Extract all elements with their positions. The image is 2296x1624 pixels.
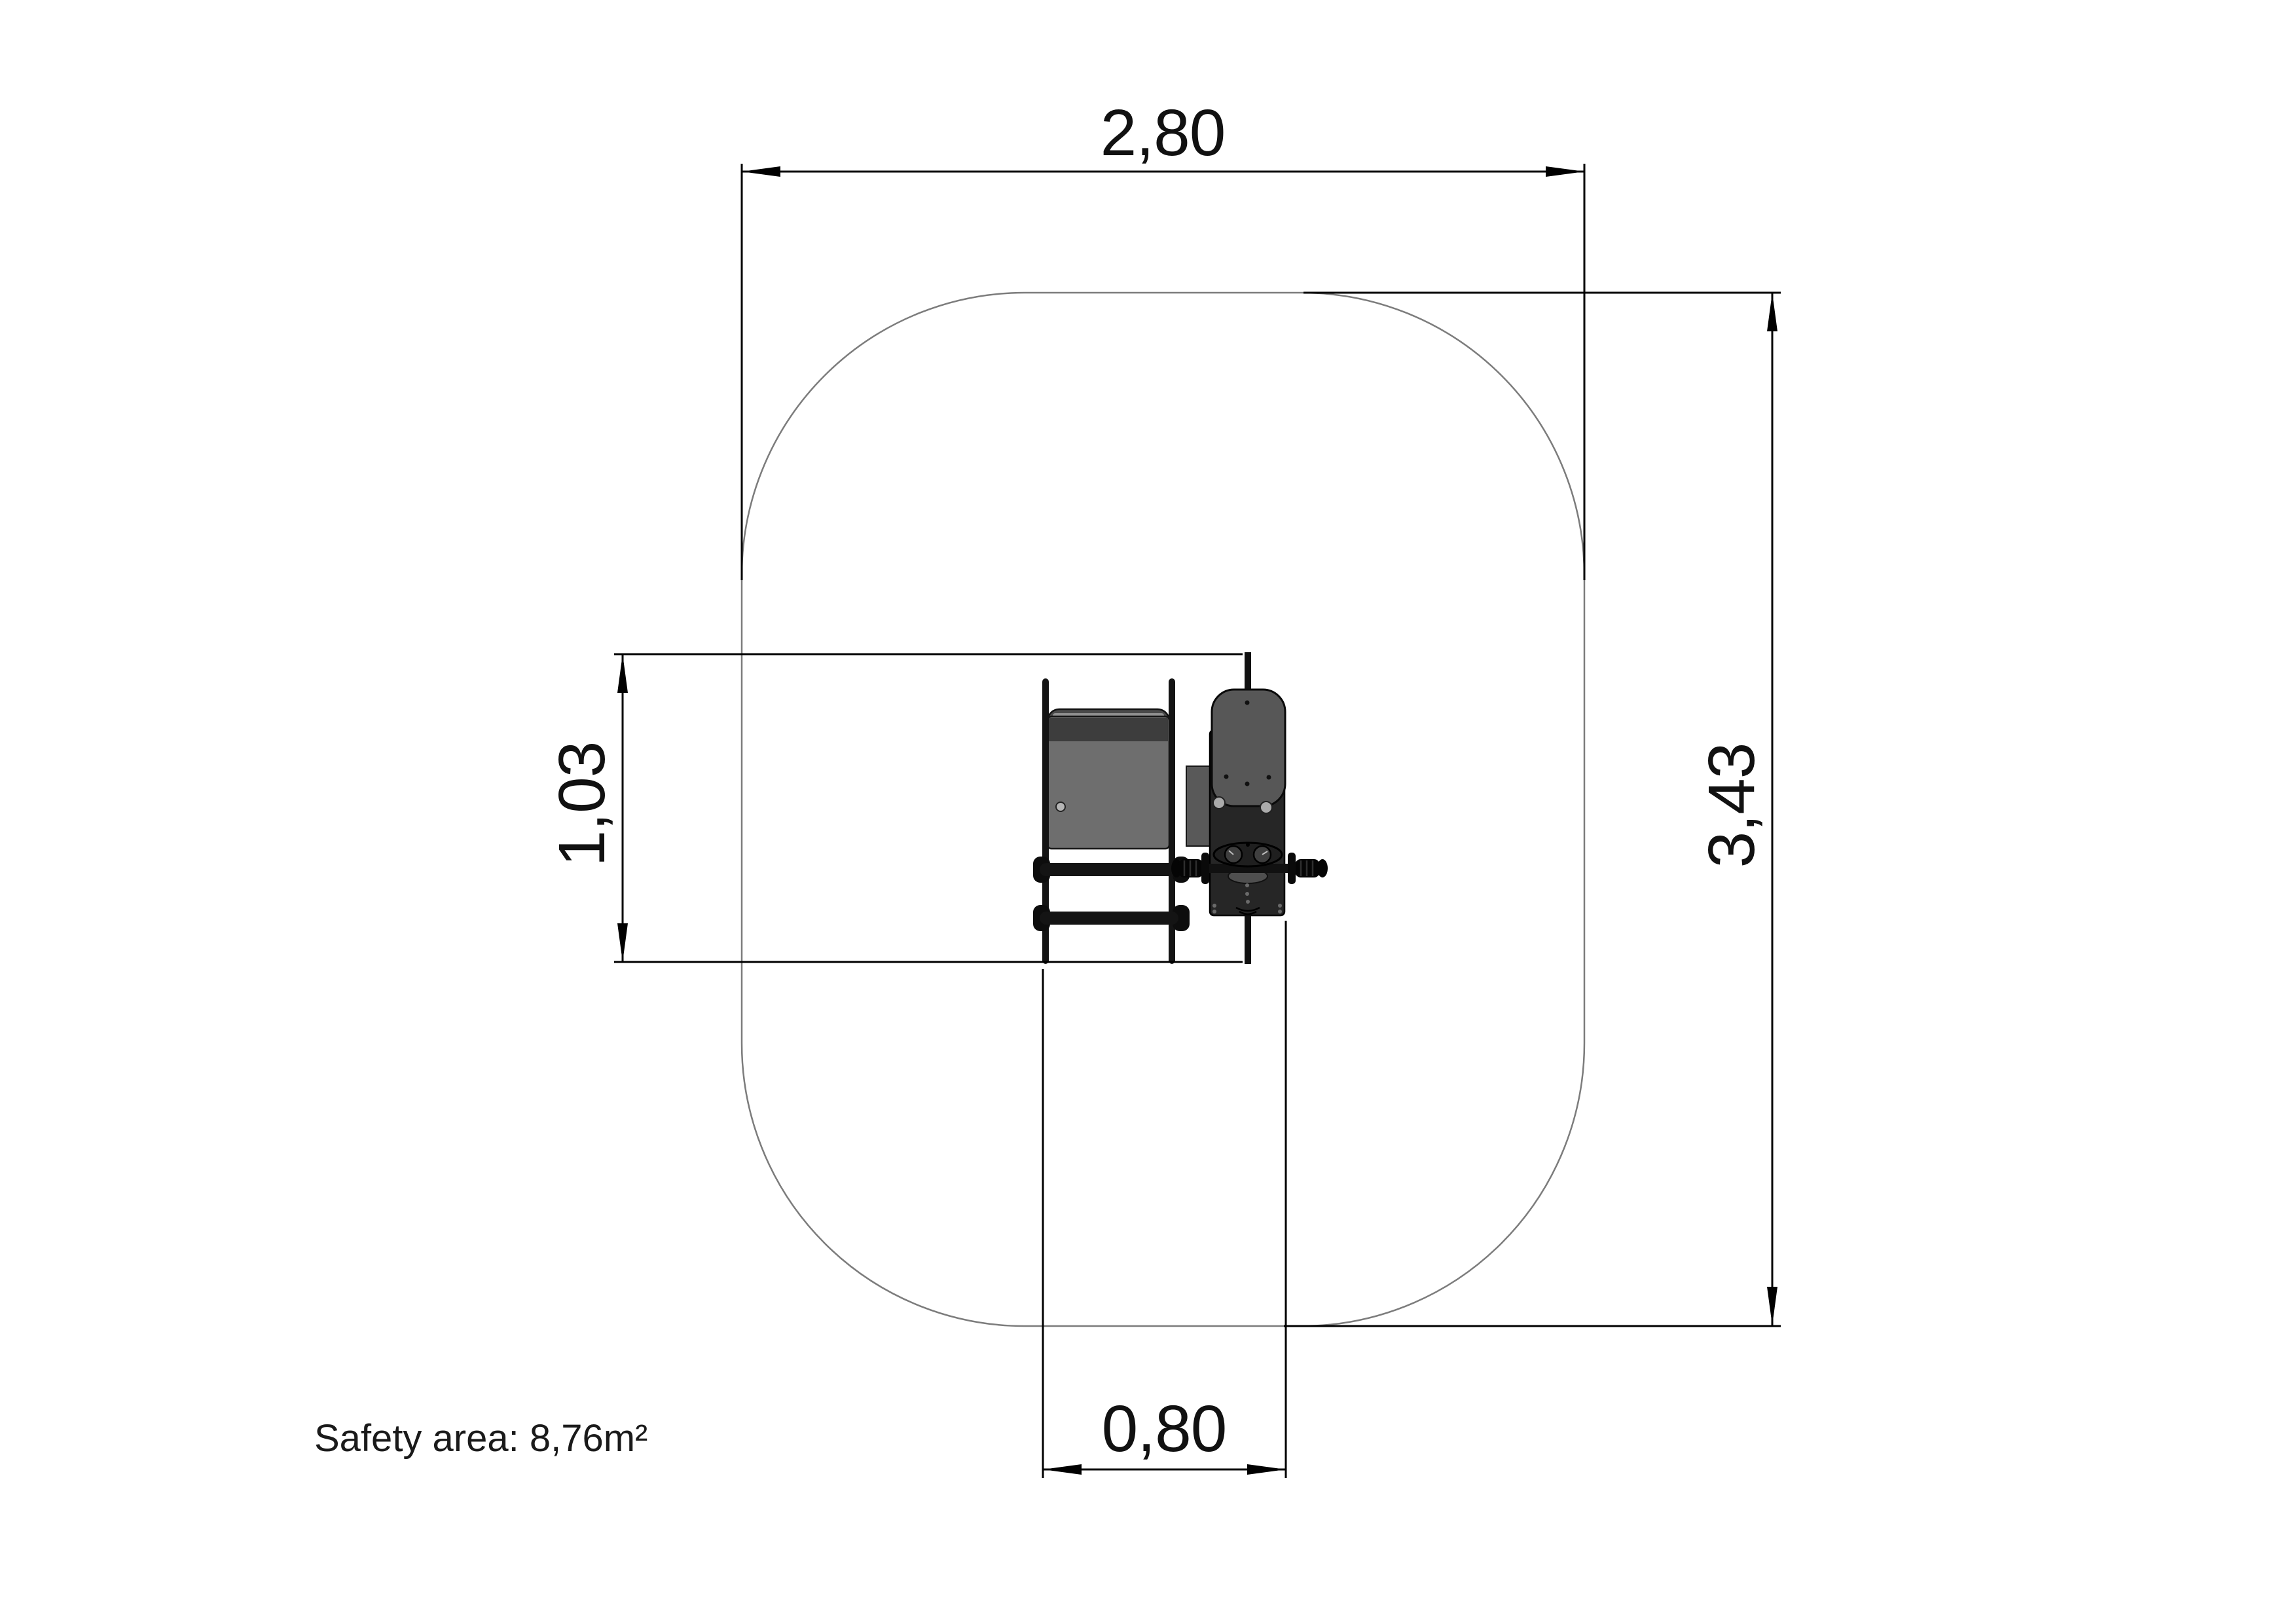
dimension-value-equipment-width: 0,80 (1102, 1396, 1227, 1462)
pad-bolt-icon (1245, 782, 1250, 786)
dashboard-bolt-icon (1246, 843, 1250, 847)
equipment-post-top (1245, 652, 1251, 693)
arrowhead-left-icon (742, 166, 780, 177)
body-bolt-icon (1245, 892, 1249, 896)
equipment-connector (1186, 766, 1212, 846)
arrowhead-down-icon (1767, 1287, 1777, 1325)
drawing-canvas: 2,80 3,43 1,03 0,80 Safety area: 8,76m² (0, 0, 2296, 1624)
equipment-panel-band (1049, 718, 1168, 741)
handlebar-flange-left (1201, 853, 1209, 884)
spring-mount-icon (1260, 802, 1272, 813)
dimension-value-overall-width: 2,80 (1101, 100, 1226, 166)
pad-bolt-icon (1267, 775, 1271, 780)
arrowhead-up-icon (617, 654, 628, 693)
equipment-top-view (1033, 652, 1328, 964)
technical-drawing (0, 0, 2296, 1624)
spring-mount-icon (1213, 797, 1225, 809)
body-bolt-icon (1212, 904, 1216, 908)
body-bolt-icon (1245, 883, 1249, 887)
equipment-pad (1212, 690, 1285, 806)
dimension-value-overall-height: 3,43 (1699, 743, 1764, 868)
body-bolt-icon (1246, 900, 1250, 904)
arrowhead-left-icon (1043, 1464, 1082, 1475)
pad-bolt-icon (1245, 701, 1250, 705)
body-bolt-icon (1212, 910, 1216, 913)
body-bolt-icon (1278, 910, 1282, 913)
ladder-rung-1 (1040, 863, 1178, 876)
ladder-rung-2 (1040, 912, 1178, 925)
panel-bolt-icon (1056, 802, 1065, 811)
arrowhead-right-icon (1247, 1464, 1286, 1475)
arrowhead-down-icon (617, 923, 628, 962)
body-bolt-icon (1278, 904, 1282, 908)
equipment-post-bottom (1245, 915, 1251, 964)
arrowhead-right-icon (1546, 166, 1584, 177)
pad-bolt-icon (1224, 775, 1229, 779)
dimension-value-equipment-depth: 1,03 (549, 742, 615, 867)
dimension-overall-width (742, 164, 1584, 580)
handlebar-flange-right (1288, 853, 1296, 884)
arrowhead-up-icon (1767, 293, 1777, 331)
safety-area-label: Safety area: 8,76m² (314, 1420, 647, 1458)
